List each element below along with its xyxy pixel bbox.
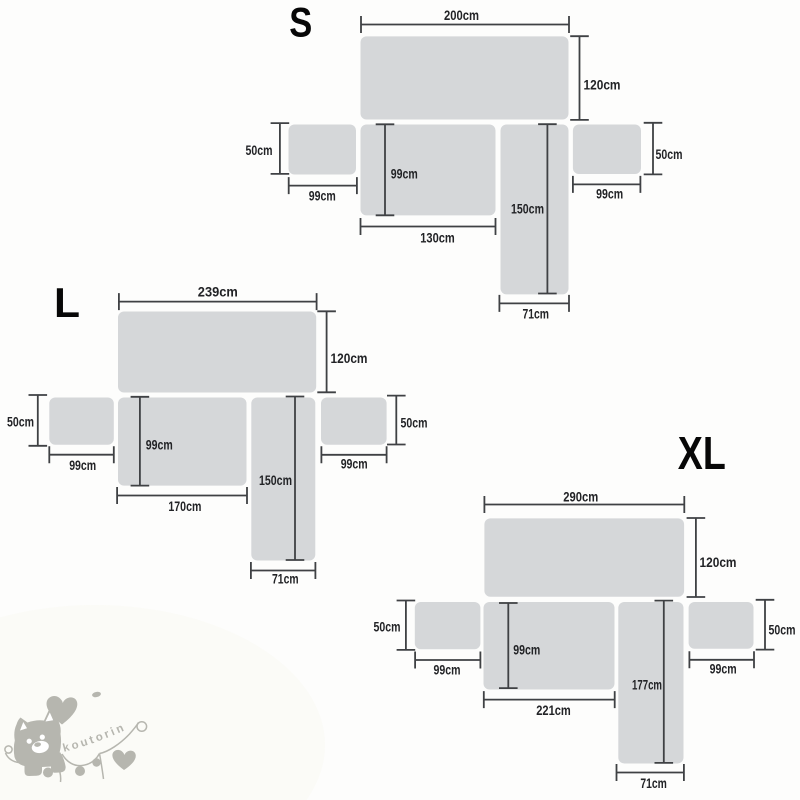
- svg-text:50cm: 50cm: [656, 146, 683, 162]
- svg-text:S: S: [289, 0, 312, 46]
- svg-text:50cm: 50cm: [401, 415, 428, 431]
- svg-text:99cm: 99cm: [69, 457, 96, 473]
- svg-text:XL: XL: [678, 427, 726, 479]
- svg-text:L: L: [54, 279, 80, 326]
- svg-text:99cm: 99cm: [341, 456, 368, 472]
- svg-text:150cm: 150cm: [511, 201, 544, 217]
- svg-text:120cm: 120cm: [584, 77, 621, 93]
- svg-text:150cm: 150cm: [259, 472, 292, 488]
- svg-text:71cm: 71cm: [272, 571, 299, 587]
- svg-text:177cm: 177cm: [632, 677, 662, 693]
- svg-text:99cm: 99cm: [513, 641, 540, 657]
- svg-text:71cm: 71cm: [640, 775, 667, 791]
- svg-text:50cm: 50cm: [246, 142, 273, 158]
- svg-text:99cm: 99cm: [391, 165, 418, 181]
- svg-text:221cm: 221cm: [536, 702, 571, 718]
- svg-text:99cm: 99cm: [309, 187, 336, 203]
- svg-text:71cm: 71cm: [522, 305, 549, 321]
- svg-text:170cm: 170cm: [168, 498, 201, 514]
- svg-text:120cm: 120cm: [700, 554, 737, 570]
- svg-text:99cm: 99cm: [146, 436, 173, 452]
- svg-text:290cm: 290cm: [563, 489, 598, 505]
- svg-text:99cm: 99cm: [596, 186, 623, 202]
- svg-text:200cm: 200cm: [444, 7, 479, 23]
- svg-text:50cm: 50cm: [769, 622, 796, 638]
- svg-text:99cm: 99cm: [710, 661, 737, 677]
- svg-text:130cm: 130cm: [420, 229, 455, 245]
- svg-text:50cm: 50cm: [7, 414, 34, 430]
- svg-text:50cm: 50cm: [374, 618, 401, 634]
- svg-text:120cm: 120cm: [331, 350, 368, 366]
- svg-text:99cm: 99cm: [434, 661, 461, 677]
- svg-text:239cm: 239cm: [198, 283, 238, 299]
